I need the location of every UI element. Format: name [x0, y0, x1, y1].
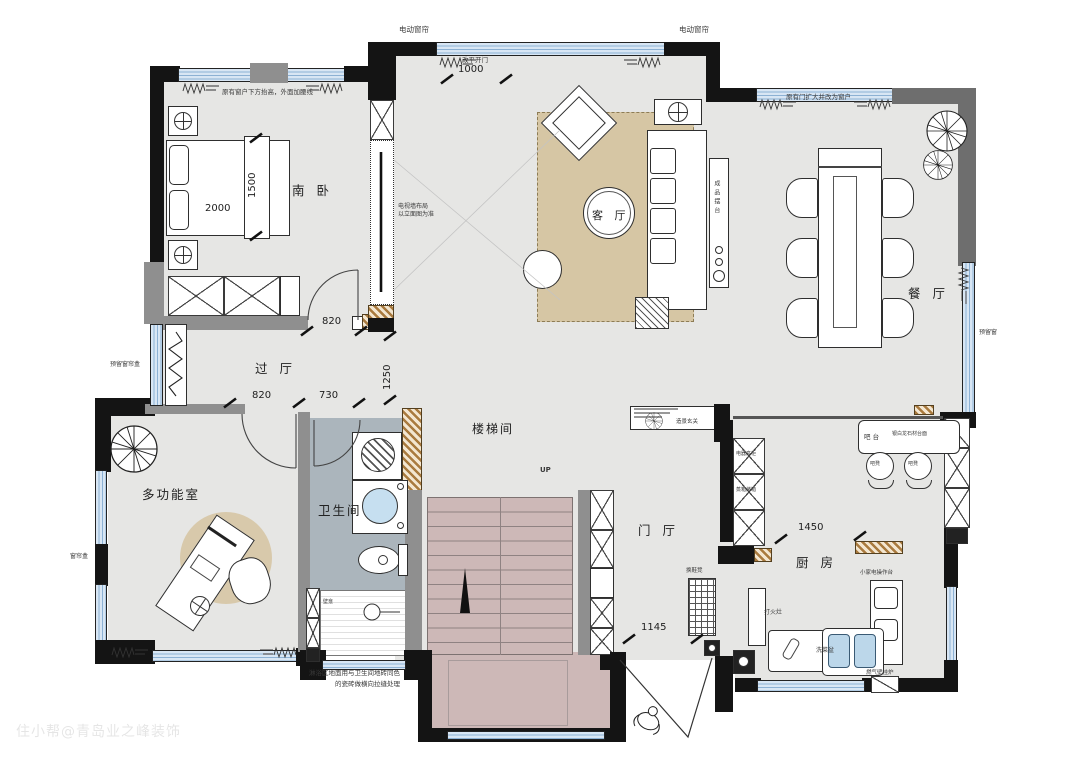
dining-table-runner [833, 176, 857, 328]
note-bar-counter: 吧 台 [864, 434, 879, 441]
dining-chair [882, 298, 914, 338]
toilet-tank [398, 544, 408, 576]
dining-chair [882, 238, 914, 278]
room-label-living: 客 厅 [592, 207, 630, 223]
wall-segment [578, 490, 590, 655]
floor-plan: 电动窗帘 电动窗帘 改平开门 1000 原有窗户下方抬高，外面加腰线 原有门扩大… [0, 0, 1080, 764]
note-up: UP [540, 466, 551, 474]
note-stove: 打火灶 [764, 610, 782, 617]
note-window-raise: 原有窗户下方抬高，外面加腰线 [222, 89, 313, 96]
wardrobe-section [280, 276, 300, 316]
dim-hall-a: 820 [252, 390, 271, 401]
dining-chair [786, 178, 818, 218]
foyer-unit-knob [708, 644, 716, 652]
dim-top-opening: 1000 [458, 64, 483, 75]
wall-segment [958, 96, 976, 266]
room-label-multi: 多功能室 [142, 484, 200, 503]
faucet-icon [397, 522, 404, 529]
new-wall-hatch [754, 548, 772, 562]
note-scenic-entry: 造景玄关 [676, 419, 698, 425]
stair-cabinet [590, 568, 614, 598]
stair-landing-inner [448, 660, 568, 726]
note-bar-stool-2: 吧凳 [908, 462, 918, 468]
console-decor [715, 246, 723, 254]
note-tv-wall-1: 电视墙布局 [398, 204, 428, 211]
wash-basin [362, 488, 398, 524]
console-decor [715, 258, 723, 266]
stair-cabinet [590, 598, 614, 628]
note-curtain-right: 电动窗帘 [679, 26, 709, 35]
note-bar-material: 银白龙石材台面 [892, 432, 927, 438]
wall-segment [706, 88, 758, 102]
window-band [962, 262, 975, 414]
note-shower-1: 淋浴区地面用与卫生间地砖同色 [300, 670, 400, 677]
stair-divider [500, 497, 501, 655]
wall-segment [368, 318, 394, 332]
shower-column [306, 648, 320, 662]
toilet-flush [378, 555, 388, 565]
sofa-cushion [650, 208, 676, 234]
wall-segment [95, 544, 108, 586]
console-decor [713, 270, 725, 282]
note-bar-stool-1: 吧凳 [870, 462, 880, 468]
floor-shower [320, 590, 408, 656]
stair-cabinet [590, 530, 614, 568]
pouf [523, 250, 562, 289]
side-stool [635, 297, 669, 329]
note-steam-oven: 蒸箱烤箱 [736, 488, 756, 494]
wall-segment [95, 640, 155, 664]
stair-cabinet [590, 490, 614, 530]
note-shoe-bench: 换鞋凳 [686, 568, 703, 574]
wardrobe-section [224, 276, 280, 316]
room-label-south-bedroom: 南 卧 [292, 180, 333, 199]
entry-cabinet [630, 406, 716, 430]
wall-segment [718, 546, 754, 564]
note-tall-cabinet: 电器高柜 [736, 452, 756, 458]
note-veg-sink: 洗菜盆 [816, 648, 834, 655]
sofa-cushion [650, 238, 676, 264]
room-label-dining: 餐 厅 [908, 283, 949, 302]
new-wall-hatch [368, 305, 394, 319]
window-band [150, 324, 163, 406]
wardrobe-section [168, 276, 224, 316]
wall-segment [715, 656, 733, 712]
dim-bedroom-door: 820 [322, 316, 341, 327]
window-band [946, 586, 957, 662]
wall-segment [95, 398, 111, 472]
dim-bed-width: 2000 [205, 203, 230, 214]
dining-chair [882, 178, 914, 218]
note-curtain-left: 电动窗帘 [399, 26, 429, 35]
shower-niche [306, 588, 320, 618]
note-tv-wall-2: 以立面图为准 [398, 212, 434, 219]
wall-segment [250, 63, 288, 83]
note-door-to-window: 原有门扩大并改为窗户 [786, 94, 851, 101]
new-wall-hatch [914, 405, 934, 415]
room-label-hall: 过 厅 [255, 358, 296, 377]
console-table [709, 158, 729, 288]
dining-chair [786, 298, 818, 338]
dining-table-line [818, 166, 882, 168]
dim-foyer-entry: 1145 [641, 622, 666, 633]
tv-wall-cabinet [370, 100, 394, 140]
stair-cabinet [590, 628, 614, 655]
note-console: 成品摆台 [712, 180, 719, 216]
pillow [169, 190, 189, 230]
window-band [757, 680, 865, 692]
wall-segment [404, 650, 420, 680]
note-niche: 壁龛 [323, 600, 333, 606]
hall-art-box [165, 324, 187, 406]
wall-segment [714, 404, 730, 442]
tv-wall [370, 140, 394, 305]
wall-segment [150, 66, 164, 266]
window-band [436, 42, 666, 56]
note-appliance-counter: 小家电操作台 [860, 570, 893, 576]
table-lamp-icon [668, 102, 688, 122]
note-curtain-box: 窗帘盒 [70, 554, 88, 561]
bar-cabinet [944, 448, 970, 488]
dim-hall-b: 730 [319, 390, 338, 401]
room-label-stairwell: 楼梯间 [472, 420, 514, 437]
bar-back-line [733, 416, 943, 419]
dim-hall-v: 1250 [382, 365, 393, 390]
dim-bed-depth: 1500 [247, 173, 258, 198]
corner-unit-knob [738, 656, 749, 667]
window-band [447, 731, 605, 740]
dim-kitchen-opening: 1450 [798, 522, 823, 533]
sink-bowl [854, 634, 876, 668]
nightstand-lamp-icon [174, 112, 192, 130]
wall-segment [144, 262, 164, 324]
pillow [169, 145, 189, 185]
gas-boiler [871, 676, 899, 693]
wall-segment [368, 42, 396, 100]
room-label-bathroom: 卫生间 [318, 500, 362, 519]
shower-niche [306, 618, 320, 648]
new-wall-hatch [855, 541, 903, 554]
nightstand-lamp-icon [174, 246, 192, 264]
bar-cabinet [944, 488, 970, 528]
sofa-cushion [650, 148, 676, 174]
dining-chair [786, 238, 818, 278]
shoe-bench [688, 578, 716, 636]
wall-segment [394, 42, 438, 56]
room-label-kitchen: 厨 房 [796, 552, 837, 571]
small-appliance [874, 587, 898, 609]
note-reserved-curtain-box: 预留窗帘盒 [110, 362, 140, 369]
kitchen-tall-cabinet [733, 510, 765, 546]
bar-cabinet-base [946, 528, 968, 544]
washer-drum [361, 438, 395, 472]
wall-segment [150, 66, 180, 82]
note-reserved-window: 预留窗 [979, 330, 997, 337]
room-label-foyer: 门 厅 [638, 520, 679, 539]
window-band [95, 470, 107, 546]
watermark: 住小帮@青岛业之峰装饰 [16, 724, 181, 740]
faucet-icon [397, 483, 404, 490]
sofa-cushion [650, 178, 676, 204]
note-boiler: 燃气壁挂炉 [866, 670, 894, 676]
window-band [152, 650, 300, 662]
note-shower-2: 的瓷砖做横向拉缝处理 [300, 681, 400, 688]
